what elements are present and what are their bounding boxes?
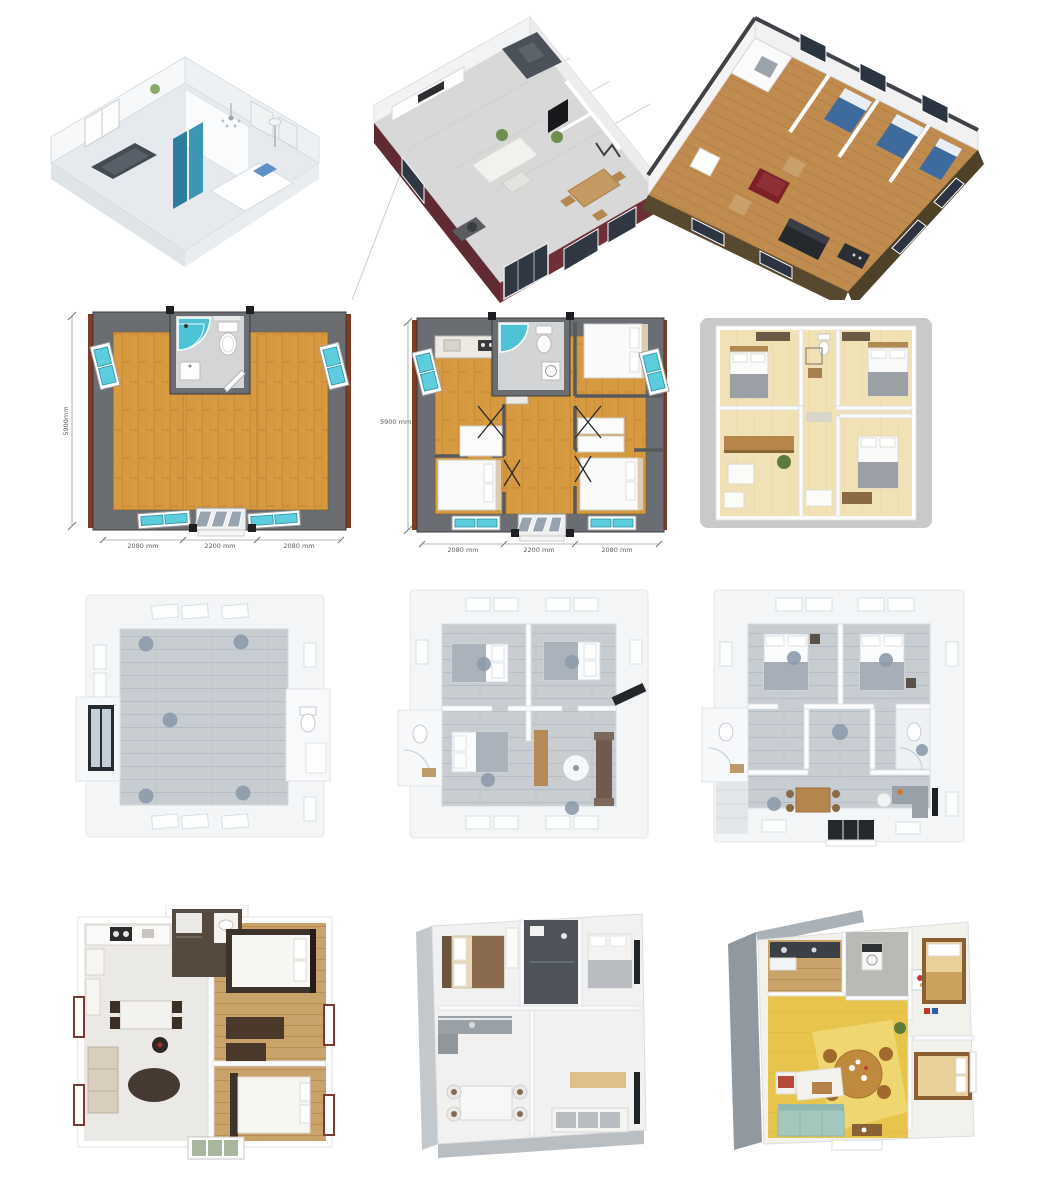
bedroom-wall	[212, 1061, 326, 1066]
sink	[530, 926, 544, 936]
bed-top	[226, 929, 316, 993]
toilet	[907, 723, 921, 741]
sofa	[596, 738, 612, 800]
toilet-tank	[218, 322, 238, 332]
bottom-left-window	[452, 516, 500, 530]
sideboard	[534, 730, 548, 786]
width-label-3: 2080 mm	[283, 542, 314, 550]
bed	[438, 460, 501, 510]
bed	[584, 324, 648, 378]
dresser	[226, 1017, 284, 1039]
plant	[496, 129, 508, 141]
panel-render-top-three-bed-living	[396, 582, 662, 850]
bathroom-pod	[286, 689, 330, 781]
entry-door	[189, 508, 256, 536]
bathroom	[170, 312, 250, 394]
side-table	[877, 793, 891, 807]
laundry-bathroom	[846, 932, 908, 996]
bed	[452, 732, 508, 772]
entry-step	[832, 1140, 882, 1150]
dining-set	[110, 1001, 182, 1029]
vanity	[306, 743, 326, 773]
plant	[894, 1022, 906, 1034]
wardrobe	[506, 928, 518, 968]
washer	[542, 362, 560, 380]
height-dimension-label: 5900 mm	[380, 418, 411, 426]
bottom-left-window	[138, 510, 191, 529]
window	[634, 1072, 640, 1124]
panel-render-iso-white-flat	[402, 892, 664, 1160]
rug	[128, 1068, 180, 1102]
dresser	[226, 1043, 266, 1061]
width-label-1: 2080 mm	[447, 546, 478, 554]
toilet	[537, 335, 551, 353]
corner-tab	[488, 312, 496, 320]
bedroom-top-right	[922, 938, 966, 1014]
panel-cad-plan-open-layout: 5900mm	[58, 300, 363, 552]
panel-render-iso-white-interior	[35, 55, 335, 290]
bottom-right-window	[588, 516, 636, 530]
bathroom-right	[896, 709, 930, 770]
hanging-plant	[150, 84, 160, 94]
height-dimension: 5900 mm	[380, 318, 412, 534]
sofa	[88, 1047, 118, 1113]
panel-render-top-warm-three-bed	[700, 312, 932, 534]
bathroom-left	[702, 708, 748, 782]
window	[634, 940, 640, 984]
stone-wall	[716, 778, 748, 834]
bedroom-bottom-right	[914, 1052, 976, 1100]
corner-tab	[166, 306, 174, 314]
width-dimensions: 2080 mm 2200 mm 2080 mm	[419, 541, 662, 554]
entry-door	[511, 514, 574, 541]
toilet-tank	[536, 326, 552, 334]
bathroom	[492, 318, 570, 396]
panel-render-iso-yellow-flat	[712, 892, 997, 1170]
panel-render-iso-brown-container	[640, 8, 985, 300]
side-wall-3d	[728, 932, 762, 1150]
trim	[346, 314, 351, 528]
panel-cad-plan-three-bedroom: 5900 mm	[378, 310, 673, 555]
floorplan-image-grid: 5900mm	[0, 0, 1040, 1178]
teal-sofa	[778, 1110, 844, 1136]
panel-render-top-two-bed-two-bath	[700, 582, 978, 854]
window	[970, 1052, 976, 1092]
toilet	[301, 714, 315, 732]
panel-render-top-furnished-flat	[62, 905, 347, 1163]
width-dimensions: 2080 mm 2200 mm 2080 mm	[100, 537, 344, 550]
entry-door	[188, 1137, 244, 1159]
desk	[852, 1124, 882, 1136]
bedroom-right	[588, 934, 640, 988]
table	[460, 426, 502, 456]
plant	[551, 131, 563, 143]
width-label-1: 2080 mm	[127, 542, 158, 550]
bed-bottom	[230, 1073, 310, 1137]
width-label-3: 2080 mm	[601, 546, 632, 554]
corner-tab	[566, 312, 574, 320]
bathroom-pod	[398, 710, 442, 786]
tv	[932, 788, 938, 816]
height-dimension-label: 5900mm	[62, 406, 70, 435]
fridge	[86, 949, 104, 975]
coffee-table	[812, 1082, 832, 1094]
width-label-2: 2200 mm	[204, 542, 235, 550]
panel-render-top-empty-studio	[72, 585, 337, 850]
desk	[570, 1072, 626, 1088]
shower	[176, 913, 202, 933]
table	[578, 436, 624, 452]
bed	[580, 458, 643, 510]
toilet	[413, 725, 427, 743]
laptop	[862, 1128, 867, 1133]
width-label-2: 2200 mm	[523, 546, 554, 554]
plant	[777, 455, 791, 469]
bathroom	[524, 920, 578, 1004]
kitchen-sink	[444, 340, 460, 351]
plank-floor	[120, 629, 288, 805]
panel-render-iso-maroon-house	[352, 15, 662, 305]
entry-door	[826, 820, 876, 846]
corner-tab	[246, 306, 254, 314]
entry-door	[76, 697, 120, 781]
toilet	[719, 723, 733, 741]
height-dimension: 5900mm	[62, 312, 76, 530]
